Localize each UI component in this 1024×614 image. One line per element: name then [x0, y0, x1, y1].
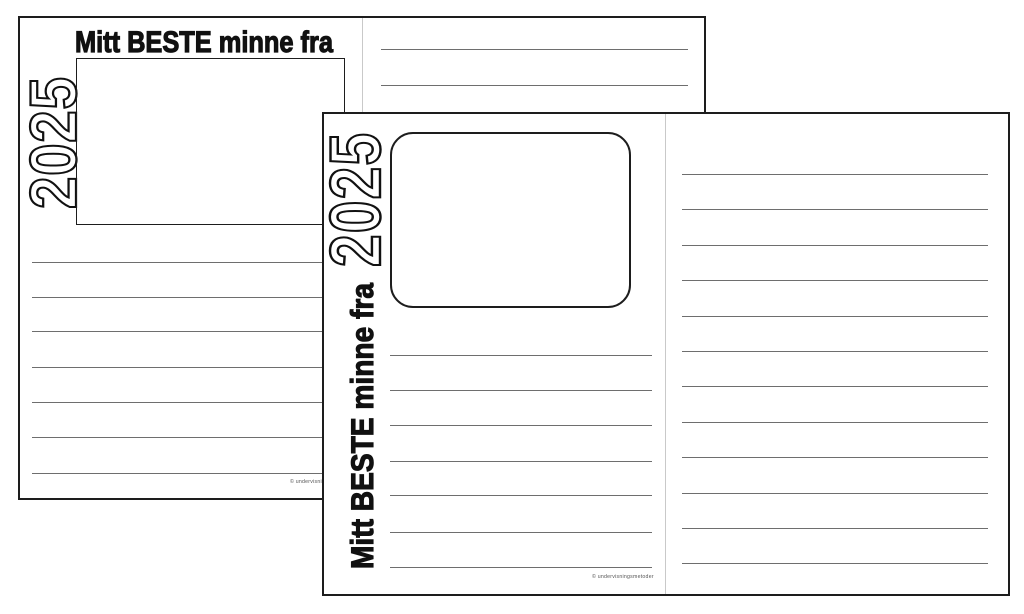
svg-text:Mitt BESTE minne fra: Mitt BESTE minne fra	[345, 283, 380, 569]
svg-text:2025: 2025	[324, 133, 395, 267]
